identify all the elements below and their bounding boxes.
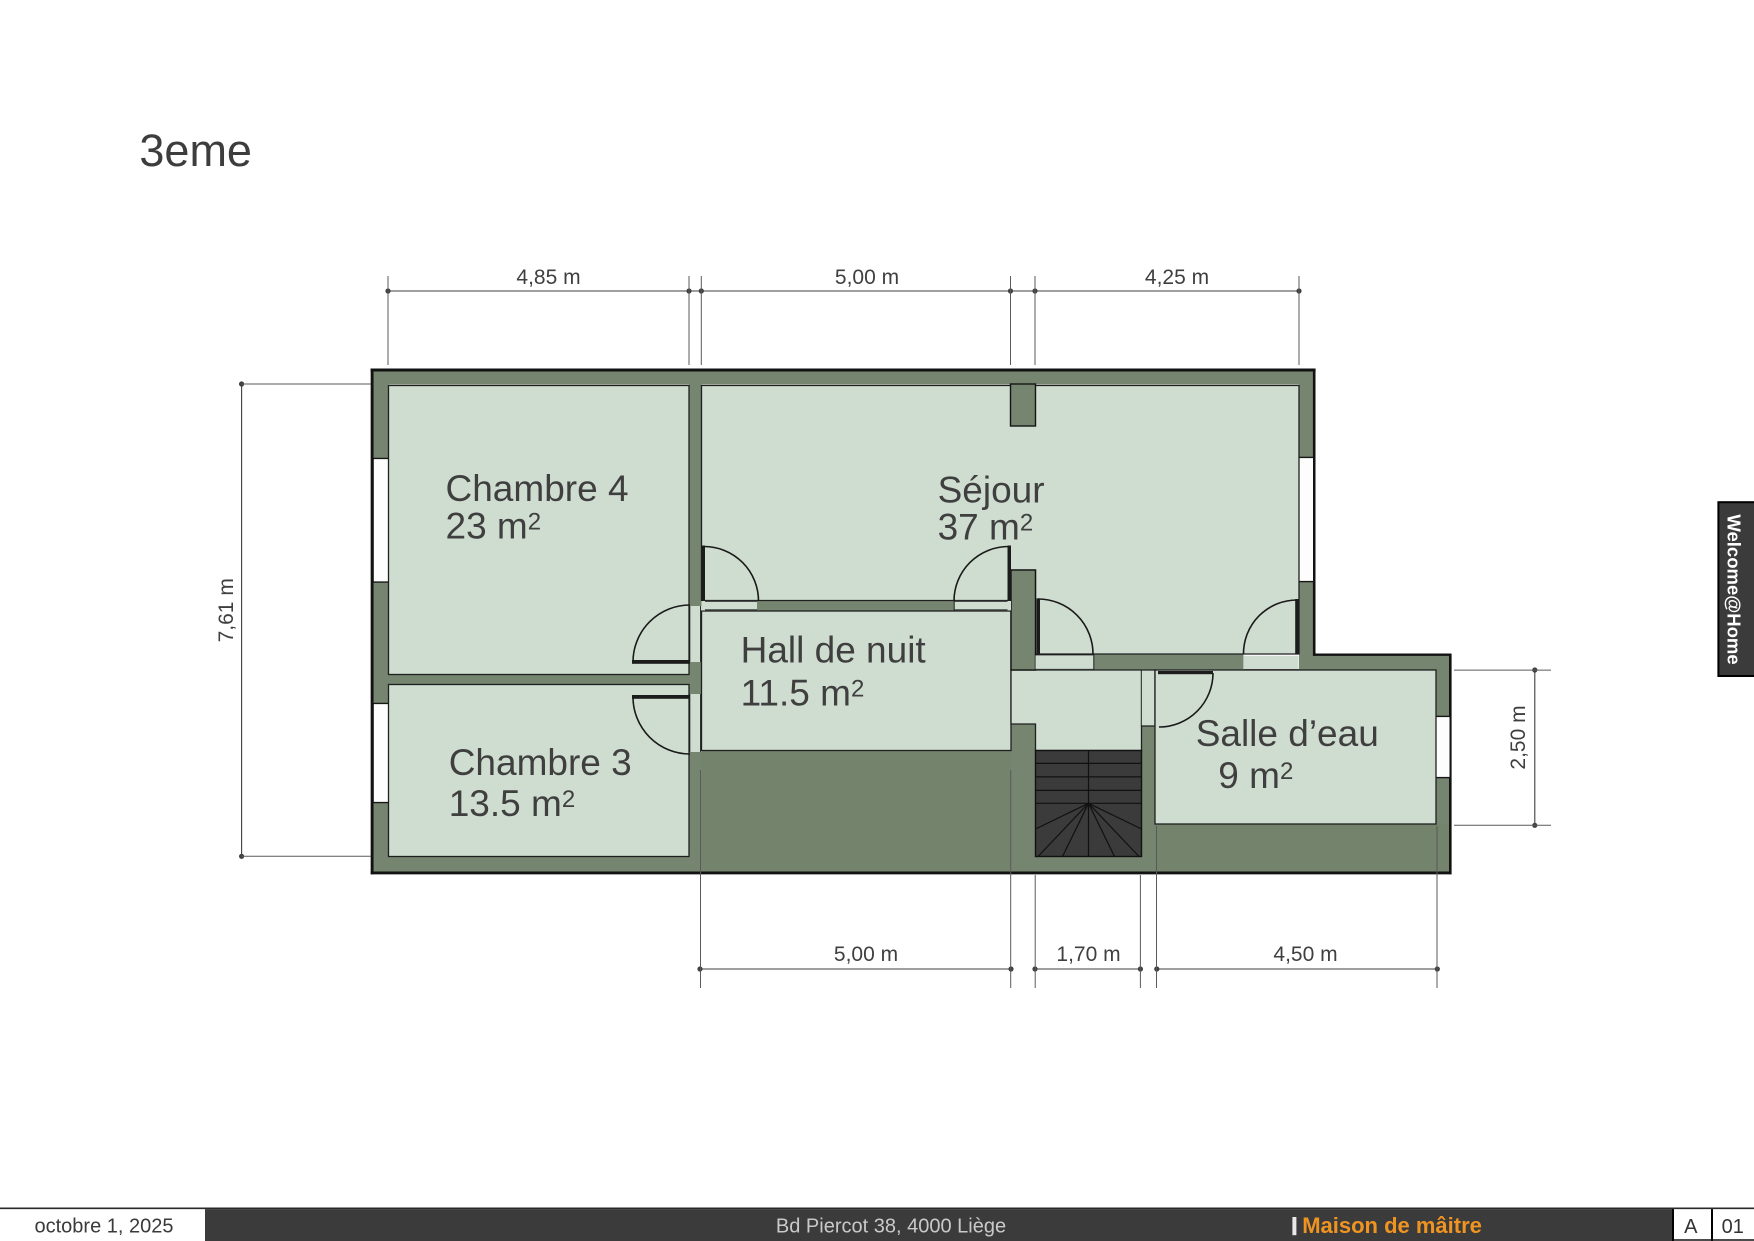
svg-text:Hall de nuit: Hall de nuit <box>741 630 927 671</box>
svg-text:3eme: 3eme <box>139 125 252 176</box>
svg-text:A: A <box>1684 1216 1698 1238</box>
svg-text:Maison de mâitre: Maison de mâitre <box>1302 1213 1482 1238</box>
svg-text:1,70 m: 1,70 m <box>1056 943 1120 966</box>
svg-text:Chambre 4: Chambre 4 <box>446 468 629 509</box>
svg-text:Bd Piercot 38, 4000 Liège: Bd Piercot 38, 4000 Liège <box>776 1216 1006 1238</box>
svg-text:4,85 m: 4,85 m <box>516 266 580 289</box>
svg-text:Chambre 3: Chambre 3 <box>449 742 632 783</box>
svg-text:Salle d’eau: Salle d’eau <box>1196 713 1379 754</box>
svg-text:5,00 m: 5,00 m <box>835 266 899 289</box>
svg-text:octobre 1, 2025: octobre 1, 2025 <box>35 1216 174 1238</box>
svg-text:4,50 m: 4,50 m <box>1273 943 1337 966</box>
svg-text:5,00 m: 5,00 m <box>834 943 898 966</box>
svg-text:2,50 m: 2,50 m <box>1507 705 1530 769</box>
svg-text:4,25 m: 4,25 m <box>1145 266 1209 289</box>
svg-text:7,61 m: 7,61 m <box>215 578 238 642</box>
svg-text:01: 01 <box>1722 1216 1744 1238</box>
svg-text:Welcome@Home: Welcome@Home <box>1724 514 1745 664</box>
svg-text:23 m2: 23 m2 <box>446 506 542 547</box>
svg-text:37 m2: 37 m2 <box>938 507 1034 548</box>
svg-text:Séjour: Séjour <box>938 469 1045 510</box>
svg-text:13.5 m2: 13.5 m2 <box>449 783 575 824</box>
svg-text:11.5 m2: 11.5 m2 <box>741 673 865 714</box>
